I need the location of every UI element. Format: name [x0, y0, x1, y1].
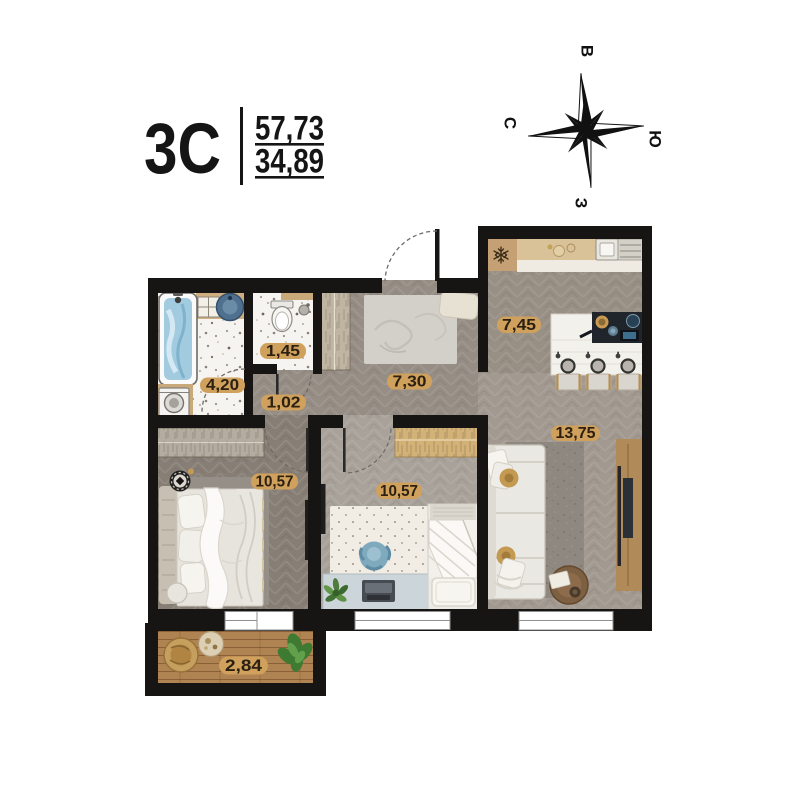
- svg-text:10,57: 10,57: [256, 474, 294, 491]
- svg-text:З: З: [572, 198, 591, 209]
- svg-text:13,75: 13,75: [556, 425, 596, 442]
- svg-text:34,89: 34,89: [255, 143, 324, 181]
- svg-text:2,84: 2,84: [225, 657, 263, 675]
- svg-text:Ю: Ю: [646, 130, 665, 148]
- svg-text:С: С: [501, 117, 520, 129]
- svg-text:1,02: 1,02: [267, 395, 301, 412]
- svg-text:В: В: [578, 45, 597, 57]
- svg-text:7,45: 7,45: [502, 317, 536, 334]
- svg-text:1,45: 1,45: [266, 343, 300, 360]
- svg-text:10,57: 10,57: [380, 483, 418, 500]
- svg-text:3С: 3С: [144, 110, 221, 189]
- svg-text:4,20: 4,20: [206, 377, 239, 394]
- svg-text:7,30: 7,30: [393, 374, 427, 391]
